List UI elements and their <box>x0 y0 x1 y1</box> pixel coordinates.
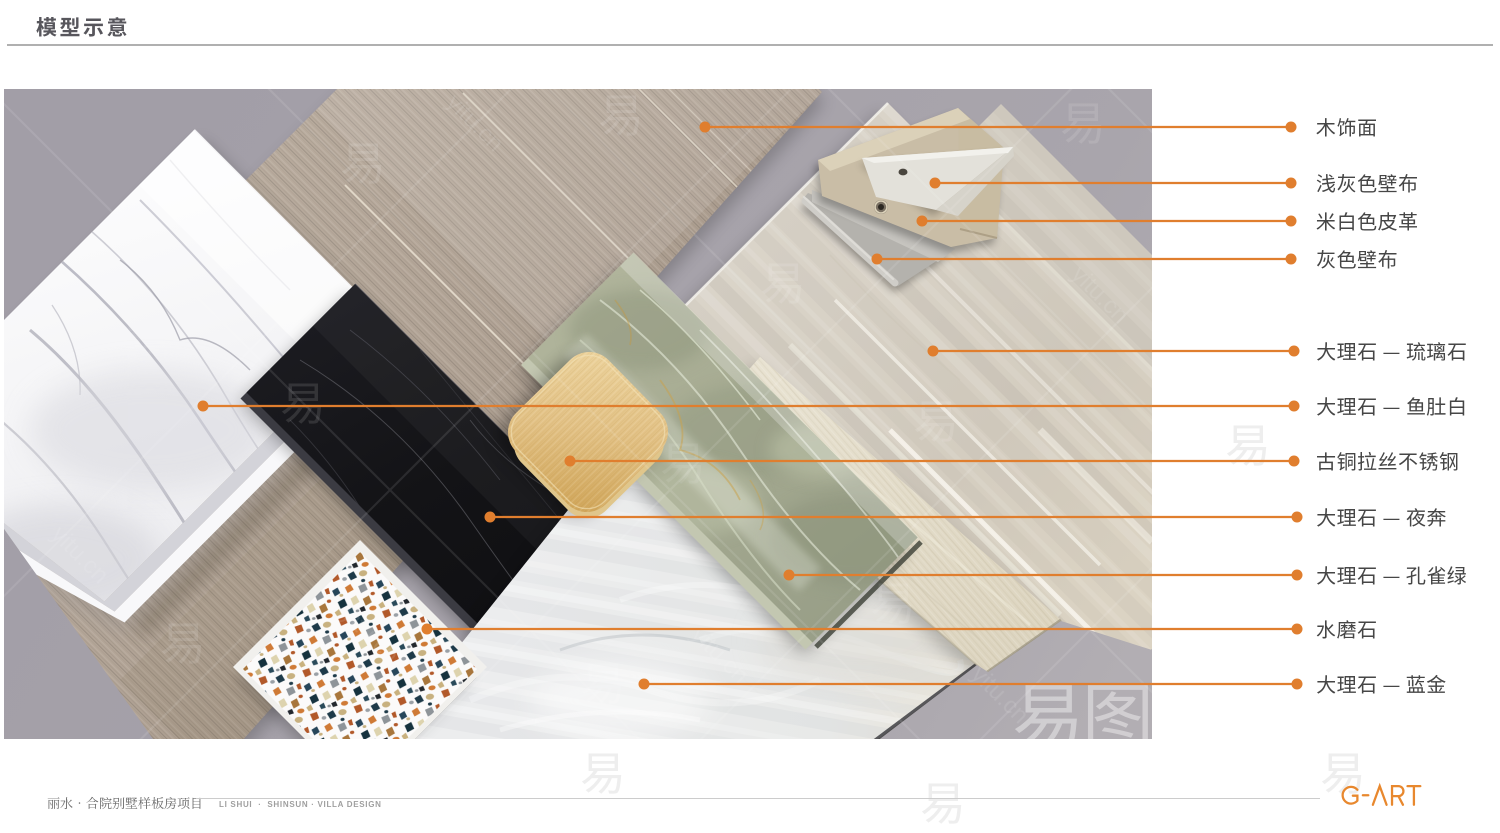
svg-text:易: 易 <box>598 80 644 146</box>
svg-text:易: 易 <box>340 128 386 194</box>
svg-text:yitu.cn: yitu.cn <box>46 521 114 589</box>
svg-text:yitu.cn: yitu.cn <box>686 621 754 689</box>
svg-text:yitu.cn: yitu.cn <box>906 11 974 79</box>
svg-text:yitu.cn: yitu.cn <box>1066 261 1134 329</box>
svg-text:易: 易 <box>760 248 806 314</box>
svg-text:yitu.cn: yitu.cn <box>336 601 404 669</box>
svg-text:易: 易 <box>160 608 206 674</box>
svg-text:易: 易 <box>870 568 916 634</box>
svg-text:易: 易 <box>920 768 966 833</box>
svg-text:易: 易 <box>1060 88 1106 154</box>
svg-text:易: 易 <box>120 298 166 364</box>
svg-text:易: 易 <box>280 368 326 434</box>
svg-text:易: 易 <box>580 648 626 714</box>
svg-text:易: 易 <box>1225 410 1271 476</box>
svg-text:易图网: 易图网 <box>1012 658 1222 763</box>
svg-text:yitu.cn: yitu.cn <box>441 89 509 157</box>
svg-text:易: 易 <box>913 386 959 452</box>
svg-text:易: 易 <box>580 738 626 804</box>
